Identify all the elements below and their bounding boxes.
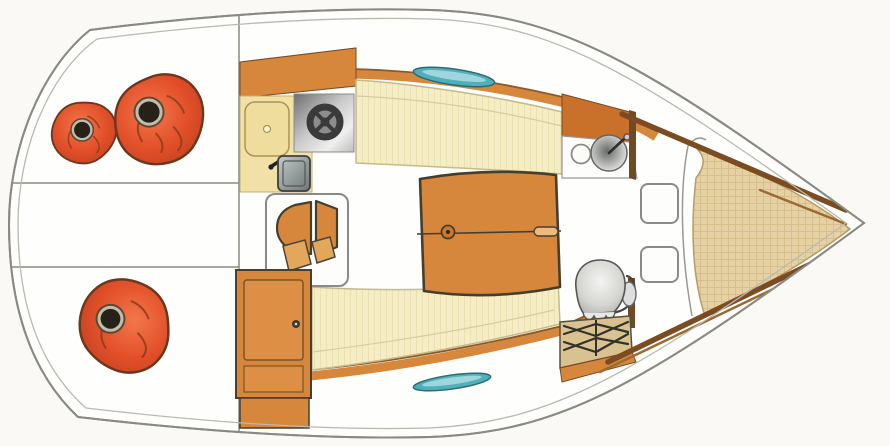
cabinet-door xyxy=(244,280,303,360)
dining-table xyxy=(417,172,561,295)
locker-upper xyxy=(641,184,678,223)
icebox-finger-hole xyxy=(264,126,271,133)
boat-floorplan xyxy=(0,0,890,446)
floorplan-svg xyxy=(0,0,890,446)
table-mast-hole-dot xyxy=(446,230,450,234)
locker-lower xyxy=(641,247,678,282)
storage-cabinet xyxy=(236,270,311,428)
table-handle xyxy=(534,227,558,236)
soap-bowl xyxy=(572,145,591,164)
stove-burner-icon xyxy=(310,107,340,137)
cabinet-lower-panel xyxy=(244,366,303,392)
cabinet-knob-dot xyxy=(295,323,298,326)
